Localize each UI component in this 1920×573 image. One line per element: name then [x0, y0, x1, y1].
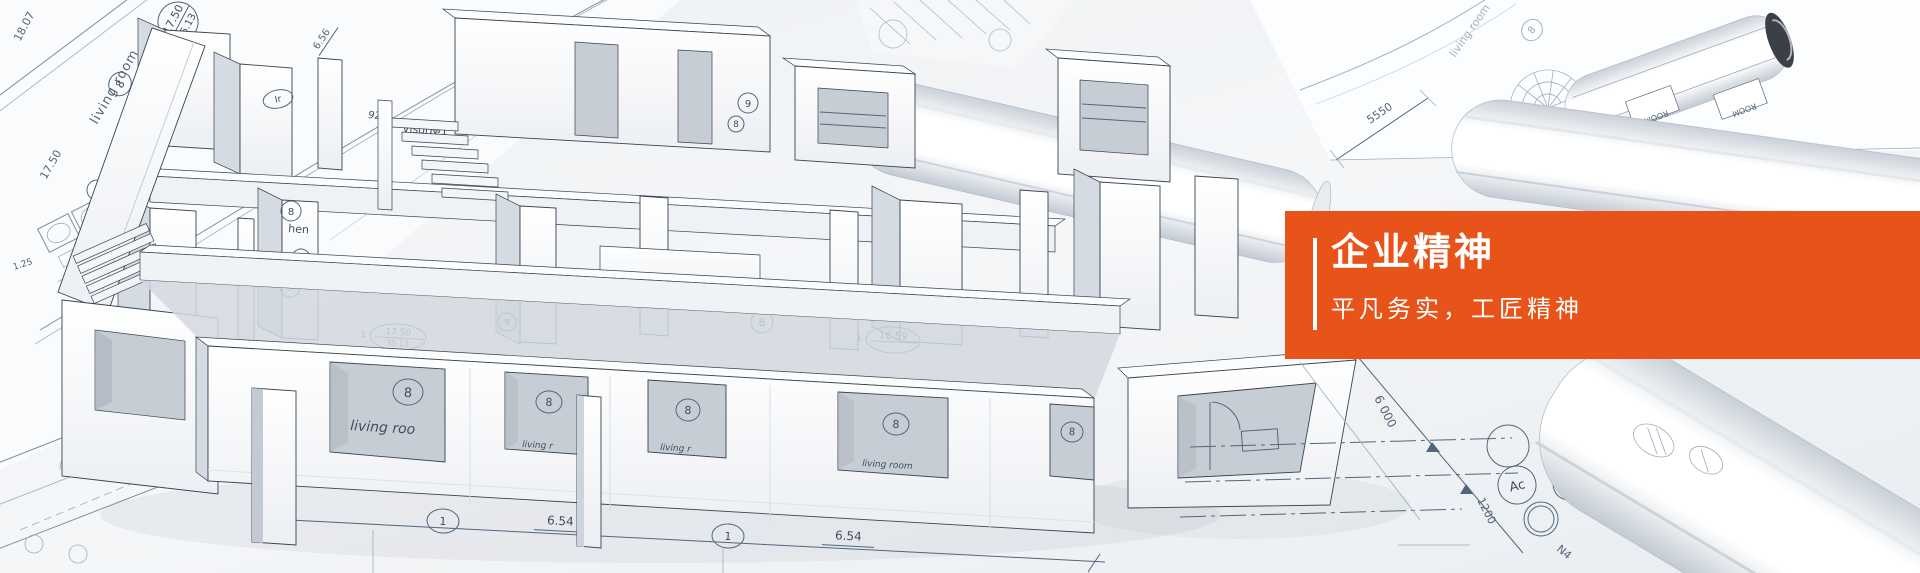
circle-9: 9 — [745, 99, 751, 110]
circle-1: 1 — [724, 530, 732, 543]
dim-654-text: 6.54 — [835, 528, 862, 543]
circle-8: 8 — [892, 418, 900, 431]
circle-8: 8 — [403, 386, 412, 401]
dim-654-text: 6.54 — [547, 513, 574, 528]
living-room-small: living r — [660, 443, 693, 455]
banner-subtitle: 平凡务实，工匠精神 — [1331, 295, 1583, 324]
facade-window-4: 8 living room — [838, 392, 948, 478]
circle-8: 8 — [684, 404, 692, 417]
model-right-wing — [1118, 350, 1356, 508]
facade-window-2: 8 living r — [505, 372, 588, 455]
banner-divider — [1313, 238, 1317, 330]
facade-window-1: 8 living roo — [330, 362, 445, 462]
hero-section: 17.50 35.13 1 18.07 8 living room 17.50 … — [0, 0, 1920, 573]
circle-8: 8 — [288, 207, 294, 218]
living-room-small: living r — [522, 440, 555, 452]
kitchen-label-cut: hen — [288, 222, 310, 236]
circle-8: 8 — [545, 396, 553, 409]
circle-8: 8 — [1069, 427, 1076, 438]
banner-title: 企业精神 — [1331, 232, 1495, 274]
section-banner: 企业精神 平凡务实，工匠精神 — [1285, 211, 1920, 359]
circle-8: 8 — [733, 120, 739, 130]
facade-window-3: 8 living r — [648, 380, 726, 458]
circle-1: 1 — [439, 515, 447, 528]
facade-window-5: 8 — [1050, 404, 1094, 480]
